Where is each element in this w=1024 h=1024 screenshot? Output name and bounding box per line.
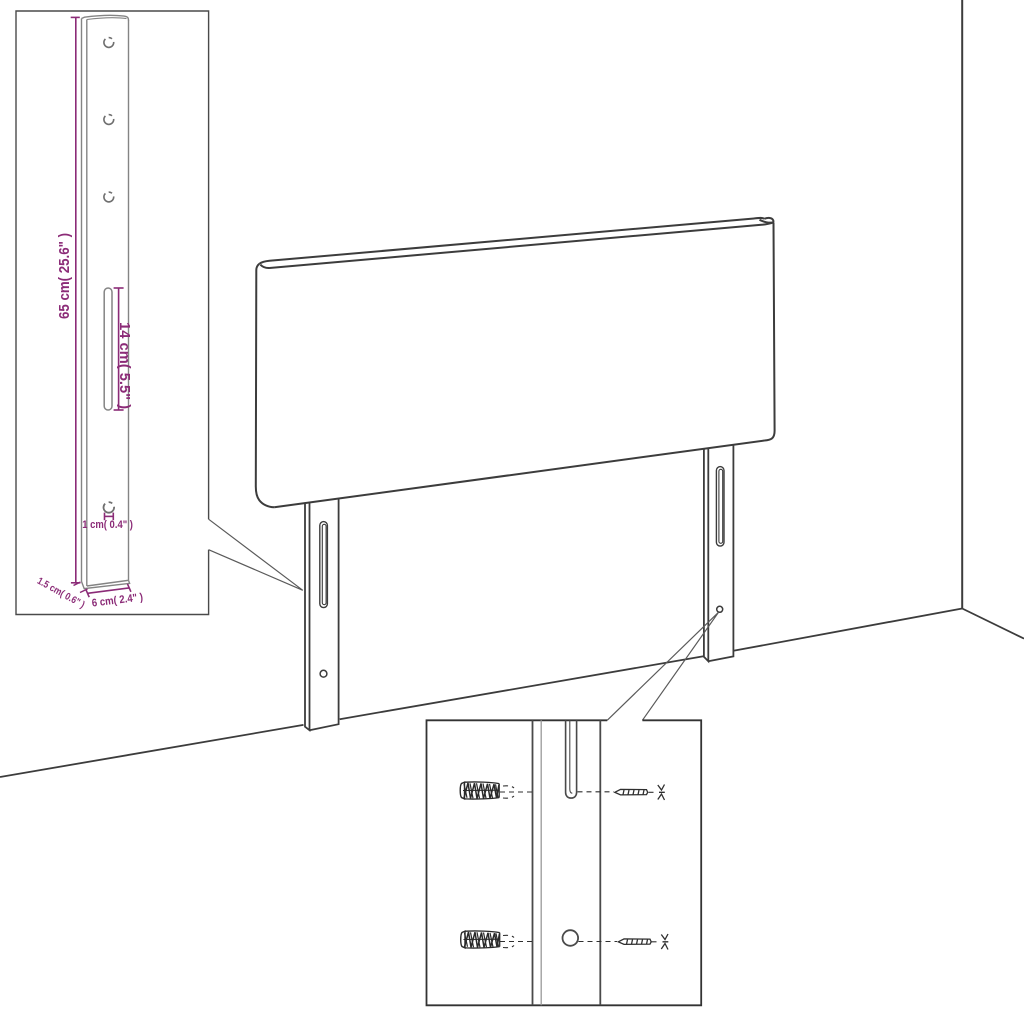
svg-text:1 cm( 0.4" ): 1 cm( 0.4" ) — [82, 519, 133, 531]
svg-text:1.5 cm( 0.6" ): 1.5 cm( 0.6" ) — [35, 575, 86, 610]
svg-text:14 cm( 5.5" ): 14 cm( 5.5" ) — [116, 322, 132, 409]
svg-text:65 cm( 25.6" ): 65 cm( 25.6" ) — [55, 233, 72, 319]
svg-text:6 cm( 2.4" ): 6 cm( 2.4" ) — [91, 592, 144, 610]
